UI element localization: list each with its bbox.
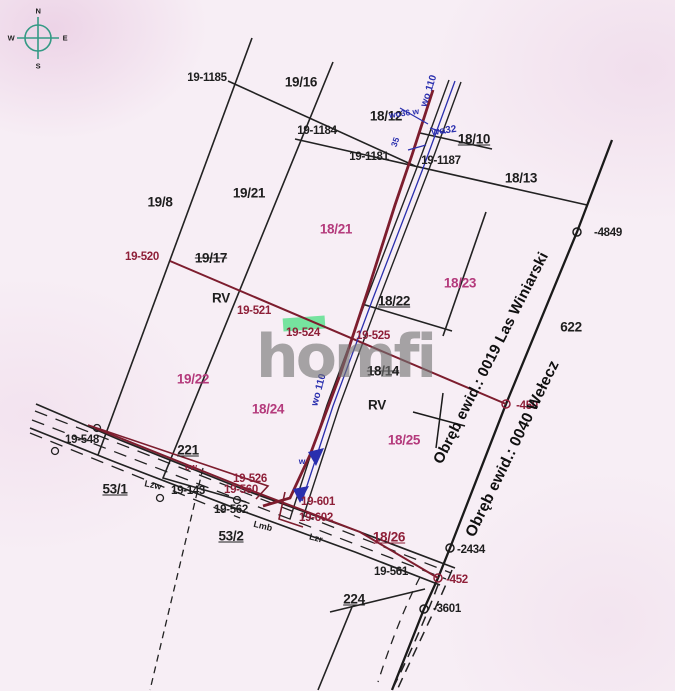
watermain-label-w: w: [299, 456, 306, 466]
compass-e: E: [63, 34, 68, 43]
land-use-rv-east: RV: [368, 398, 386, 413]
compass-w: W: [8, 34, 15, 43]
parcel-label-18-25: 18/25: [388, 433, 420, 448]
point-label-4849: -4849: [594, 227, 622, 239]
point-label-19-602: 19-602: [299, 512, 333, 524]
map-linework: [0, 0, 675, 691]
point-label-19-1187: 19-1187: [421, 155, 460, 167]
parcel-label-19-16: 19/16: [285, 75, 317, 90]
point-label-19-521: 19-521: [237, 305, 271, 317]
point-label-19-1185: 19-1185: [187, 72, 226, 84]
parcel-label-19-8: 19/8: [147, 195, 172, 210]
point-label-19-524: 19-524: [286, 327, 320, 339]
point-label-19-1181: 19-1181: [349, 151, 388, 163]
parcel-label-18-22: 18/22: [378, 294, 410, 309]
parcel-label-18-10: 18/10: [458, 132, 490, 147]
parcel-label-622: 622: [560, 320, 582, 335]
parcel-label-18-26: 18/26: [373, 530, 405, 545]
point-label-19-548: 19-548: [65, 434, 99, 446]
point-label-19-525: 19-525: [356, 330, 390, 342]
parcel-label-18-23: 18/23: [444, 276, 476, 291]
parcel-label-18-24: 18/24: [252, 402, 284, 417]
land-use-ew: ew: [185, 462, 197, 472]
parcel-label-19-22: 19/22: [177, 372, 209, 387]
point-label-452: -452: [446, 574, 468, 586]
parcel-label-53-1: 53/1: [102, 482, 127, 497]
parcel-label-224: 224: [343, 592, 365, 607]
parcel-label-18-14-struck: 18/14: [367, 364, 399, 379]
cadastral-map: N E S W 19-1185 19-1184 19-1181 19-1187 …: [0, 0, 675, 691]
point-label-3601: -3601: [433, 603, 461, 615]
land-use-rv-west: RV: [212, 291, 230, 306]
parcel-label-221: 221: [177, 443, 199, 458]
parcel-label-53-2: 53/2: [218, 529, 243, 544]
parcel-label-19-21: 19/21: [233, 186, 265, 201]
point-label-19-560: 19-560: [224, 484, 258, 496]
point-label-19-601: 19-601: [301, 496, 335, 508]
point-label-19-561: 19-561: [374, 566, 408, 578]
compass-s: S: [36, 62, 41, 71]
point-label-19-1184: 19-1184: [297, 125, 336, 137]
parcel-label-18-21: 18/21: [320, 222, 352, 237]
point-label-19-562: 19-562: [214, 504, 248, 516]
compass-n: N: [35, 7, 40, 16]
parcel-label-19-17-struck: 19/17: [195, 251, 227, 266]
parcel-label-18-13: 18/13: [505, 171, 537, 186]
watermain-blue-line: [302, 81, 455, 501]
point-label-19-520: 19-520: [125, 251, 159, 263]
compass-rose-icon: [17, 17, 59, 59]
point-label-2434: -2434: [457, 544, 485, 556]
point-label-19-143: 19-143: [171, 485, 205, 497]
